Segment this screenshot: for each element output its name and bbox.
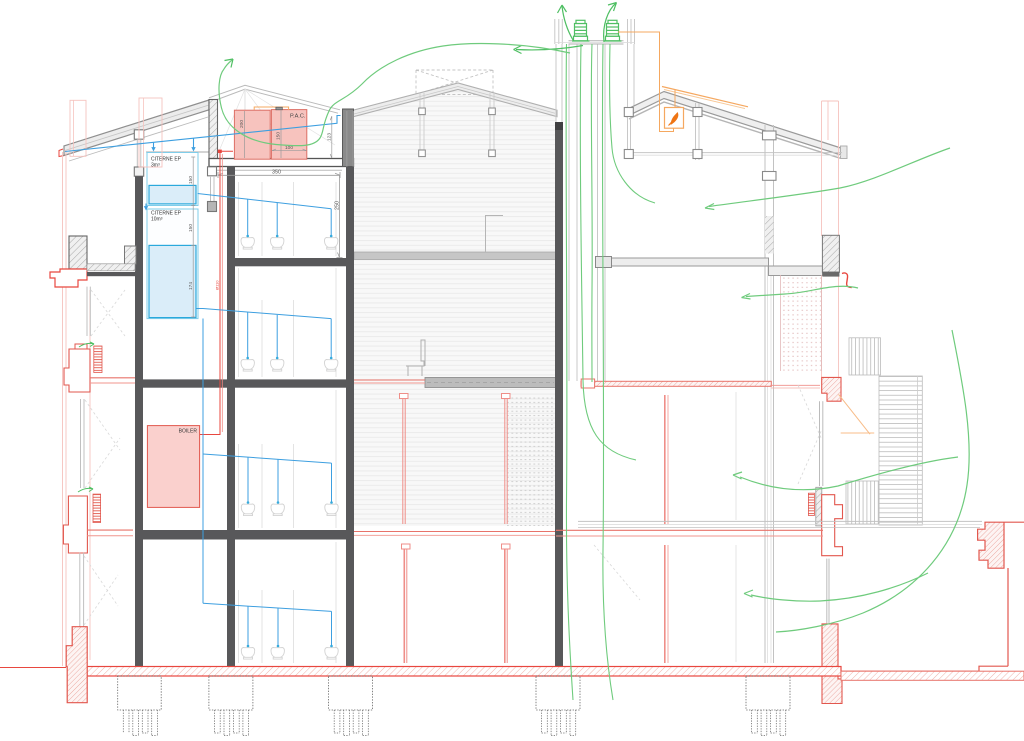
svg-text:150: 150 <box>188 224 194 232</box>
svg-text:Ø110: Ø110 <box>215 280 220 290</box>
svg-text:150: 150 <box>188 176 194 184</box>
svg-text:350: 350 <box>272 170 281 176</box>
svg-text:123: 123 <box>326 133 332 141</box>
svg-text:250: 250 <box>334 201 340 210</box>
svg-text:10m³: 10m³ <box>151 217 163 223</box>
svg-text:174: 174 <box>188 282 194 290</box>
svg-text:P.A.C.: P.A.C. <box>290 114 306 120</box>
svg-text:BOILER: BOILER <box>179 429 198 435</box>
svg-text:200: 200 <box>239 120 245 128</box>
svg-text:150: 150 <box>276 132 282 140</box>
svg-text:3m³: 3m³ <box>151 163 160 169</box>
